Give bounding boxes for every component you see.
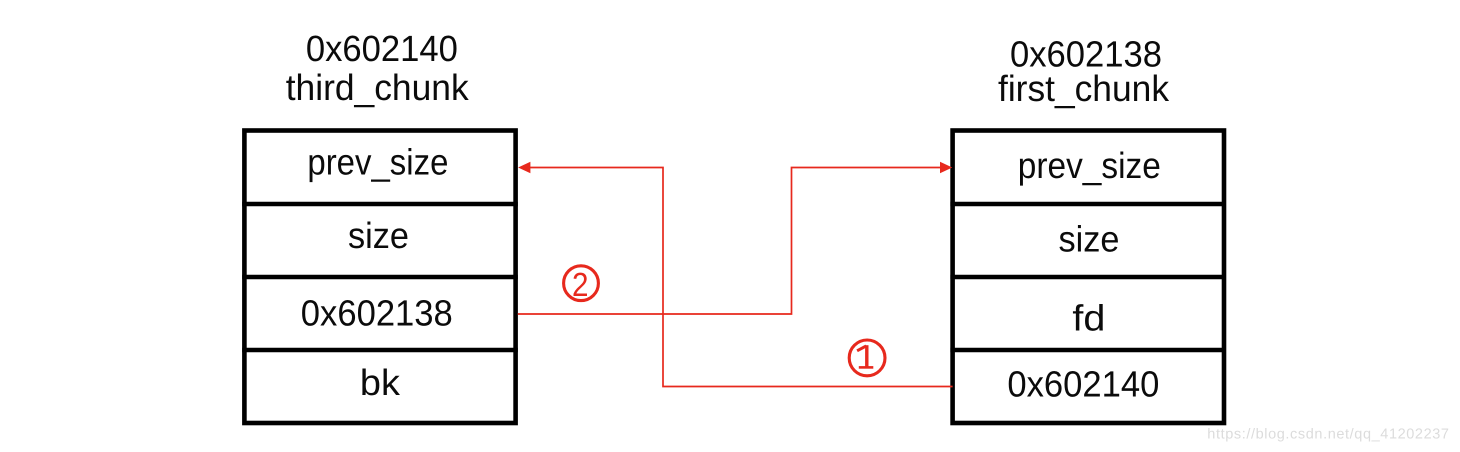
svg-text:0x602140: 0x602140 (306, 28, 458, 69)
svg-text:prev_size: prev_size (1018, 145, 1161, 186)
svg-text:fd: fd (1072, 298, 1105, 339)
svg-text:size: size (1059, 219, 1120, 260)
svg-text:0x602138: 0x602138 (301, 293, 453, 334)
svg-text:2: 2 (572, 267, 589, 304)
svg-text:prev_size: prev_size (307, 142, 448, 183)
svg-text:first_chunk: first_chunk (998, 68, 1170, 109)
svg-text:0x602140: 0x602140 (1007, 364, 1159, 405)
svg-text:https://blog.csdn.net/qq_41202: https://blog.csdn.net/qq_41202237 (1207, 427, 1449, 443)
svg-text:bk: bk (360, 362, 401, 403)
svg-text:third_chunk: third_chunk (286, 67, 470, 108)
svg-text:size: size (348, 215, 409, 256)
